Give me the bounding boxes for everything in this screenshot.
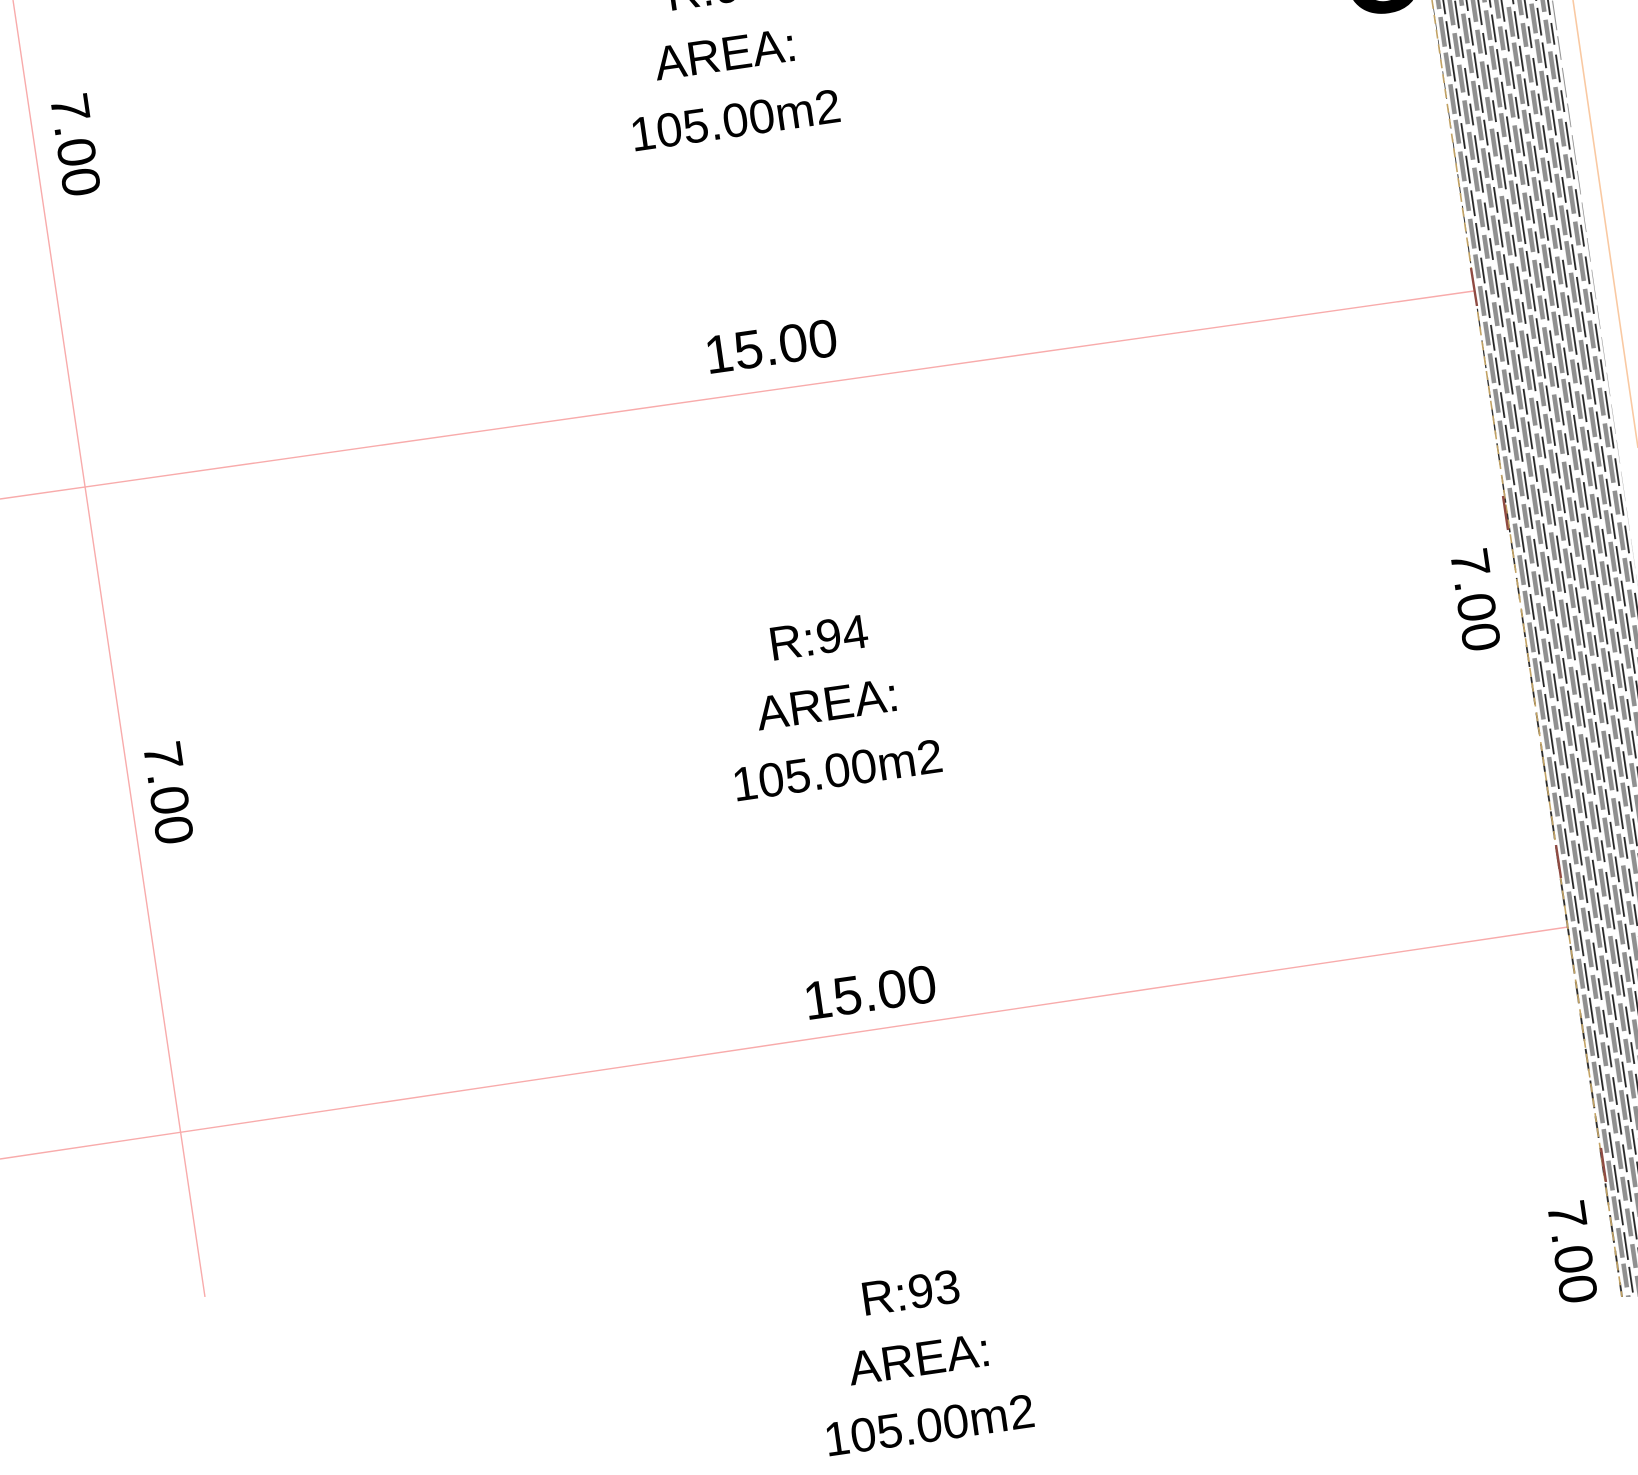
- parcel-label-r94: R:94 AREA: 105.00m2: [708, 590, 948, 819]
- lower-parcel-divider-line: [0, 927, 1568, 1159]
- left-boundary-line: [13, 0, 205, 1297]
- clipped-letter: C: [1334, 0, 1428, 36]
- parcel-label-r95: R:95 AREA: 105.00m2: [606, 0, 846, 170]
- cad-canvas[interactable]: R:95 AREA: 105.00m2 R:94 AREA: 105.00m2 …: [0, 0, 1638, 1297]
- parcel-label-r93: R:93 AREA: 105.00m2: [800, 1245, 1040, 1474]
